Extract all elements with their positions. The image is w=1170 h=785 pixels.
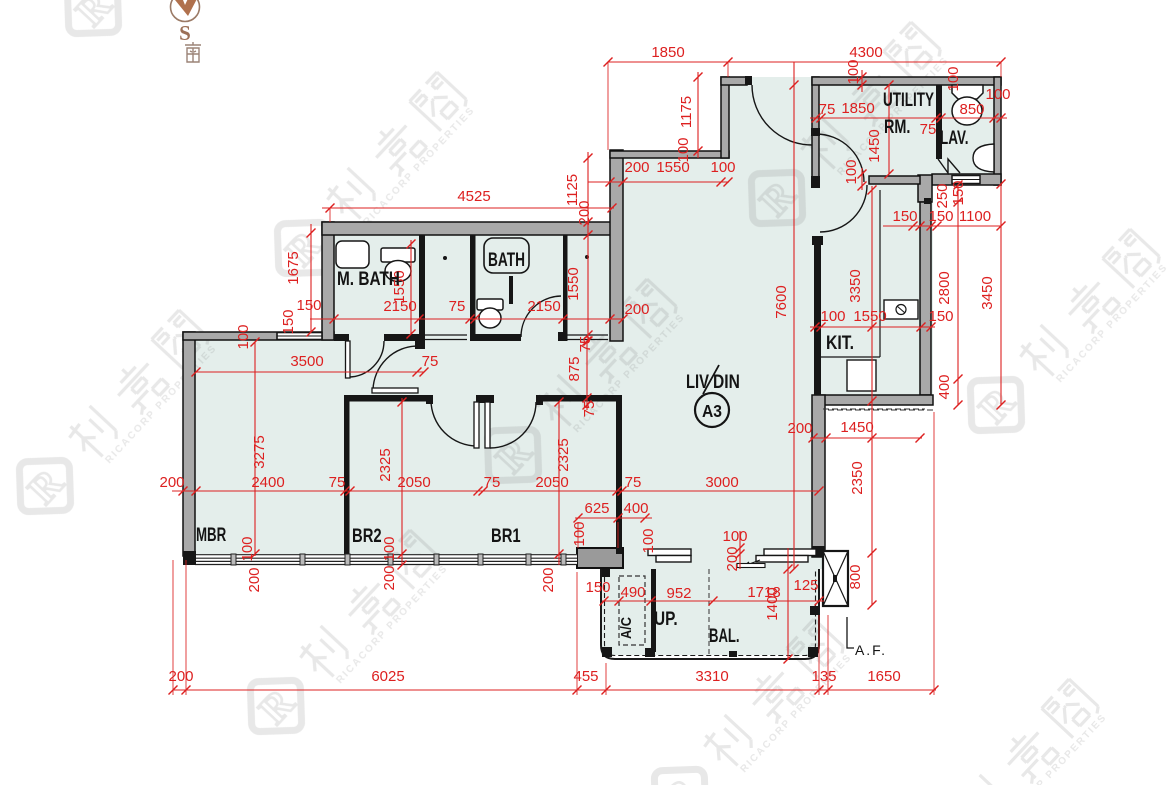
svg-text:75: 75: [625, 474, 642, 491]
svg-text:3310: 3310: [695, 668, 728, 685]
svg-text:800: 800: [847, 564, 864, 589]
svg-text:2050: 2050: [535, 474, 568, 491]
svg-text:75: 75: [819, 101, 836, 118]
svg-text:400: 400: [623, 500, 648, 517]
svg-text:BAL.: BAL.: [709, 626, 740, 647]
svg-text:200: 200: [168, 668, 193, 685]
svg-text:1100: 1100: [959, 208, 991, 225]
svg-text:100: 100: [640, 528, 657, 553]
svg-text:625: 625: [584, 500, 609, 517]
svg-text:1550: 1550: [853, 308, 886, 325]
svg-text:A3: A3: [702, 401, 722, 421]
svg-text:200: 200: [624, 159, 649, 176]
svg-text:150: 150: [280, 309, 297, 334]
svg-text:100: 100: [675, 137, 692, 162]
svg-text:1850: 1850: [651, 44, 684, 61]
svg-text:A/C: A/C: [617, 617, 634, 639]
svg-text:200: 200: [381, 565, 398, 590]
svg-text:100: 100: [239, 536, 256, 561]
svg-text:125: 125: [793, 577, 818, 594]
svg-text:100: 100: [235, 324, 252, 349]
svg-text:1400: 1400: [764, 587, 781, 620]
svg-text:100: 100: [820, 308, 845, 325]
svg-text:150: 150: [892, 208, 917, 225]
svg-text:6025: 6025: [371, 668, 404, 685]
svg-text:3500: 3500: [290, 353, 323, 370]
svg-text:200: 200: [576, 200, 593, 225]
svg-text:1175: 1175: [678, 96, 695, 128]
svg-text:MBR: MBR: [196, 525, 226, 546]
svg-text:2150: 2150: [527, 298, 560, 315]
svg-text:75: 75: [581, 401, 598, 418]
svg-text:100: 100: [945, 66, 962, 91]
svg-text:75: 75: [422, 353, 439, 370]
svg-text:75: 75: [329, 474, 346, 491]
svg-text:2325: 2325: [555, 438, 572, 471]
svg-text:3350: 3350: [847, 269, 864, 302]
svg-text:RM.: RM.: [884, 116, 910, 137]
svg-text:200: 200: [540, 567, 557, 592]
svg-text:BR2: BR2: [352, 525, 382, 546]
svg-text:75: 75: [920, 121, 937, 138]
svg-text:2400: 2400: [251, 474, 284, 491]
svg-text:100: 100: [843, 159, 860, 184]
svg-text:455: 455: [573, 668, 598, 685]
svg-text:M. BATH: M. BATH: [337, 267, 400, 289]
svg-text:850: 850: [959, 101, 984, 118]
svg-text:3450: 3450: [979, 276, 996, 309]
svg-text:BATH: BATH: [488, 249, 525, 271]
svg-text:DIN: DIN: [713, 371, 740, 393]
svg-text:3275: 3275: [251, 435, 268, 468]
svg-text:1450: 1450: [866, 129, 883, 162]
svg-text:250: 250: [934, 183, 951, 208]
svg-text:1550: 1550: [565, 267, 582, 300]
svg-text:150: 150: [928, 308, 953, 325]
svg-text:UP.: UP.: [654, 607, 678, 629]
svg-text:A.F.: A.F.: [855, 642, 885, 658]
svg-text:150: 150: [296, 297, 321, 314]
svg-text:490: 490: [620, 584, 645, 601]
svg-text:200: 200: [787, 420, 812, 437]
svg-text:UTILITY: UTILITY: [883, 90, 934, 111]
svg-text:200: 200: [624, 301, 649, 318]
svg-text:100: 100: [722, 528, 747, 545]
svg-text:100: 100: [845, 59, 862, 84]
svg-text:100: 100: [571, 521, 588, 546]
svg-text:4300: 4300: [849, 44, 882, 61]
svg-text:150: 150: [928, 208, 953, 225]
svg-text:150: 150: [585, 579, 610, 596]
svg-text:100: 100: [710, 159, 735, 176]
svg-text:75: 75: [577, 336, 594, 353]
svg-text:200: 200: [159, 474, 184, 491]
svg-text:100: 100: [985, 86, 1010, 103]
svg-text:BR1: BR1: [491, 525, 521, 546]
svg-text:LAV.: LAV.: [940, 128, 968, 149]
svg-text:200: 200: [246, 567, 263, 592]
svg-text:1675: 1675: [285, 251, 302, 284]
svg-text:2800: 2800: [936, 271, 953, 304]
svg-text:1850: 1850: [841, 100, 874, 117]
svg-text:75: 75: [484, 474, 501, 491]
svg-text:2325: 2325: [377, 448, 394, 481]
svg-text:S: S: [179, 21, 191, 45]
svg-text:875: 875: [566, 356, 583, 381]
svg-text:952: 952: [666, 585, 691, 602]
svg-text:2350: 2350: [849, 461, 866, 494]
svg-text:3000: 3000: [705, 474, 738, 491]
svg-text:7600: 7600: [773, 285, 790, 318]
svg-text:4525: 4525: [457, 188, 490, 205]
svg-text:100: 100: [381, 536, 398, 561]
svg-text:1650: 1650: [867, 668, 900, 685]
svg-text:150: 150: [950, 180, 967, 205]
svg-text:2050: 2050: [397, 474, 430, 491]
svg-text:75: 75: [449, 298, 466, 315]
svg-text:1450: 1450: [840, 419, 873, 436]
svg-text:KIT.: KIT.: [826, 332, 854, 354]
svg-text:400: 400: [936, 374, 953, 399]
svg-text:200: 200: [724, 546, 741, 571]
svg-text:135: 135: [811, 668, 836, 685]
